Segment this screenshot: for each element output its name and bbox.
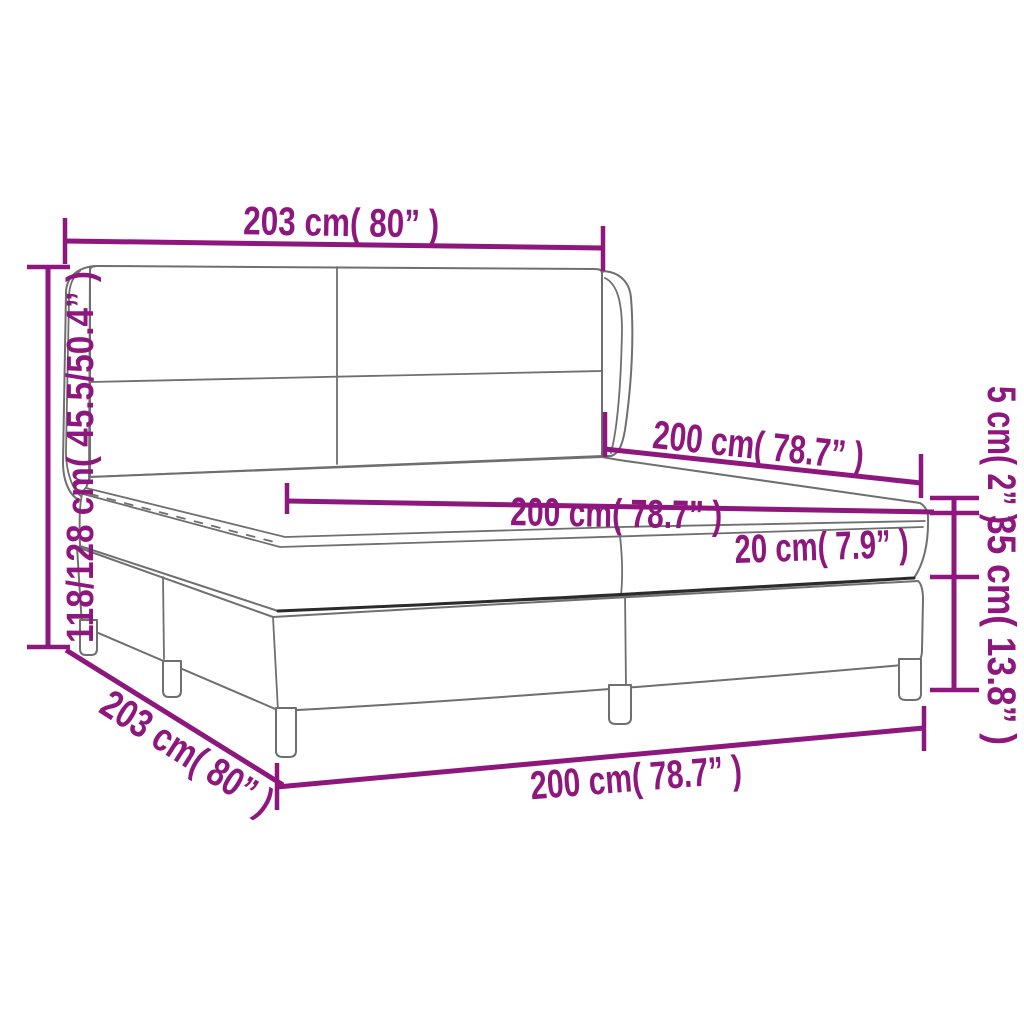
label-base-width: 200 cm( 78.7” ) <box>529 748 744 808</box>
label-base-length: 203 cm( 80” ) <box>93 682 282 824</box>
leg-left-middle <box>163 661 181 697</box>
dim-height-stack <box>930 498 979 690</box>
label-headboard-width: 203 cm( 80” ) <box>243 199 440 246</box>
leg-front-right <box>899 659 921 700</box>
bed-dimension-diagram: 203 cm( 80” ) 118/128 cm( 45.5/50.4” ) 2… <box>0 0 1024 1024</box>
leg-front-left <box>276 708 296 757</box>
leg-front-center <box>609 685 631 724</box>
box-left-seam <box>163 577 164 659</box>
diagram-canvas: 203 cm( 80” ) 118/128 cm( 45.5/50.4” ) 2… <box>0 0 1024 1024</box>
label-topper-thickness: 5 cm( 2” ) <box>979 386 1023 524</box>
headboard-face <box>90 266 602 477</box>
label-mattress-thickness: 20 cm( 7.9” ) <box>734 522 909 572</box>
box-center-seam <box>625 592 626 688</box>
label-headboard-height: 118/128 cm( 45.5/50.4” ) <box>60 271 102 643</box>
label-base-height: 35 cm( 13.8” ) <box>979 515 1023 745</box>
label-mattress-width: 200 cm( 78.7” ) <box>510 490 723 538</box>
